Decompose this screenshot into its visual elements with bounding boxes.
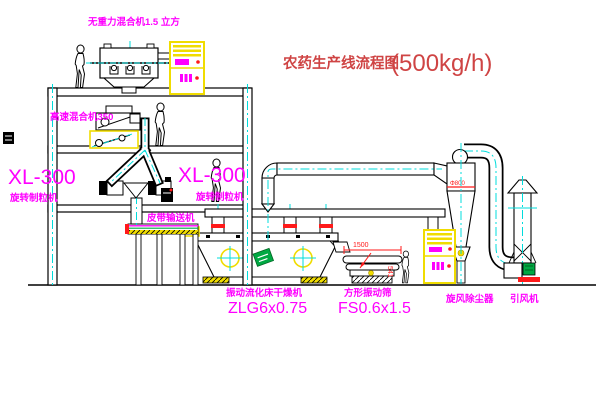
label-granulator-mid-model: XL-300 xyxy=(178,164,246,187)
label-sieve-name: 方形振动筛 xyxy=(344,287,392,299)
control-cabinet-2 xyxy=(424,230,455,283)
label-cyclone: 旋风除尘器 xyxy=(445,293,494,305)
label-fan: 引风机 xyxy=(510,293,539,305)
drawing-title: 农药生产线流程图 xyxy=(282,54,399,72)
label-sieve-model: FS0.6x1.5 xyxy=(338,300,411,317)
dim-sieve-width: 1500 xyxy=(353,242,369,249)
person-figure xyxy=(155,103,164,146)
cyclone-dia-note: Φ800 xyxy=(450,181,465,187)
vibration-mount xyxy=(211,224,225,228)
hoist-bracket xyxy=(3,132,14,144)
vibration-mount xyxy=(283,224,297,228)
dryer-exhaust-hood xyxy=(205,209,445,217)
gravity-free-mixer xyxy=(86,41,175,93)
fan-motor xyxy=(523,263,535,275)
label-dryer-model: ZLG6x0.75 xyxy=(228,300,307,317)
label-gravity-mixer: 无重力混合机1.5 立方 xyxy=(87,16,180,28)
fan-base xyxy=(518,277,540,282)
person-figure xyxy=(402,251,409,283)
label-belt-conveyor: 皮带输送机 xyxy=(146,212,195,224)
label-high-speed-mixer: 高速混合机350 xyxy=(50,111,113,123)
induced-draft-fan xyxy=(504,263,540,282)
vibration-mount xyxy=(319,224,333,228)
label-dryer-name: 振动流化床干燥机 xyxy=(226,287,303,299)
label-granulator-mid-name: 旋转制粒机 xyxy=(195,191,244,203)
drawing-capacity: (500kg/h) xyxy=(391,50,492,77)
cad-process-flow-screenshot: 1500 541 xyxy=(0,0,600,403)
label-granulator-left-model: XL-300 xyxy=(8,166,76,189)
person-figure xyxy=(75,45,84,88)
belt-conveyor xyxy=(125,224,198,285)
panel-box xyxy=(161,188,173,202)
process-flow-drawing: 1500 541 xyxy=(0,0,600,403)
dim-sieve-height: 541 xyxy=(386,266,393,278)
control-cabinet-1 xyxy=(170,42,204,94)
label-granulator-left-name: 旋转制粒机 xyxy=(9,192,58,204)
